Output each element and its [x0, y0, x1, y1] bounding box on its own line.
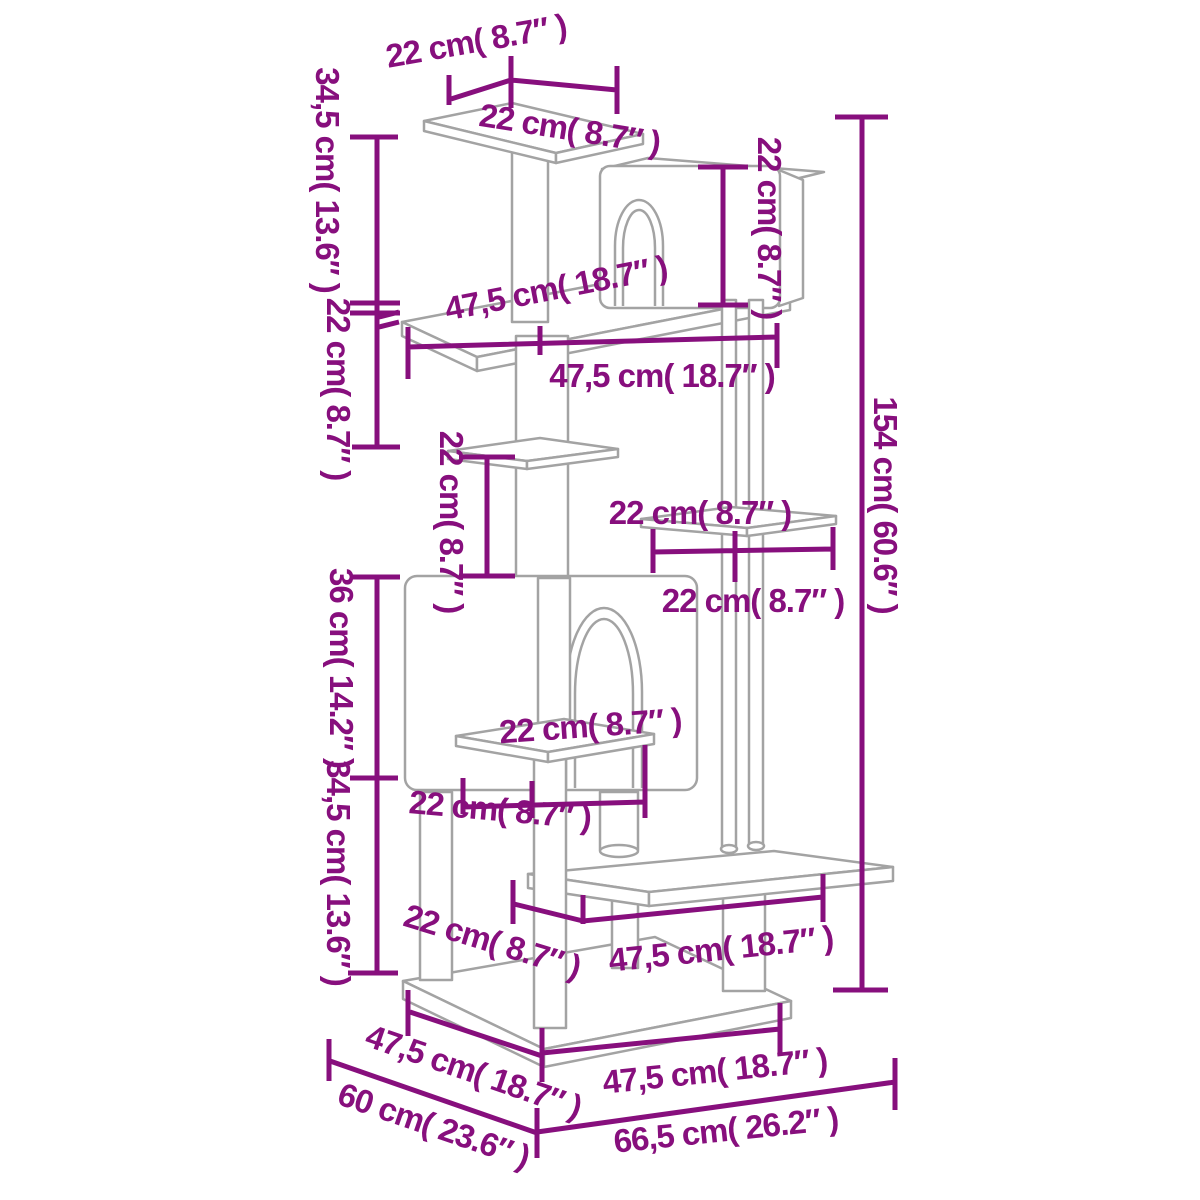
dim-label-base-diagonal-width: 66,5 cm( 26.2″ )	[612, 1099, 840, 1159]
dim-label-upper-left-gap: 22 cm( 8.7″ )	[320, 298, 357, 481]
front-post-pair	[538, 578, 570, 724]
mid-post-foot	[600, 845, 638, 857]
diagram-page: 22 cm( 8.7″ ) 22 cm( 8.7″ ) 34,5 cm( 13.…	[0, 0, 1200, 1200]
right-post-lower-b	[749, 527, 763, 845]
cat-tree-dimension-diagram: 22 cm( 8.7″ ) 22 cm( 8.7″ ) 34,5 cm( 13.…	[0, 0, 1200, 1200]
dim-label-house-section-height: 36 cm( 14.2″ )	[323, 568, 360, 768]
dim-label-upper-platform-width: 47,5 cm( 18.7″ )	[549, 357, 774, 394]
right-post-foot-a	[721, 845, 737, 853]
dim-label-lower-left-height: 34,5 cm( 13.6″ )	[320, 760, 357, 985]
dim-label-right-platform-top: 22 cm( 8.7″ )	[609, 494, 792, 531]
right-post-upper-a	[722, 300, 736, 518]
right-post-foot-b	[748, 842, 764, 850]
dim-label-upper-left-height: 34,5 cm( 13.6″ )	[309, 67, 346, 292]
dim-label-total-height: 154 cm( 60.6″ )	[867, 396, 904, 613]
dim-label-right-platform-bottom: 22 cm( 8.7″ )	[662, 582, 845, 619]
dim-label-top-house-height: 22 cm( 8.7″ )	[751, 137, 788, 320]
dim-label-top-platform-depth: 22 cm( 8.7″ )	[383, 7, 569, 75]
dim-label-shelf-gap-height: 22 cm( 8.7″ )	[433, 431, 470, 614]
right-post-upper-b	[749, 300, 763, 518]
